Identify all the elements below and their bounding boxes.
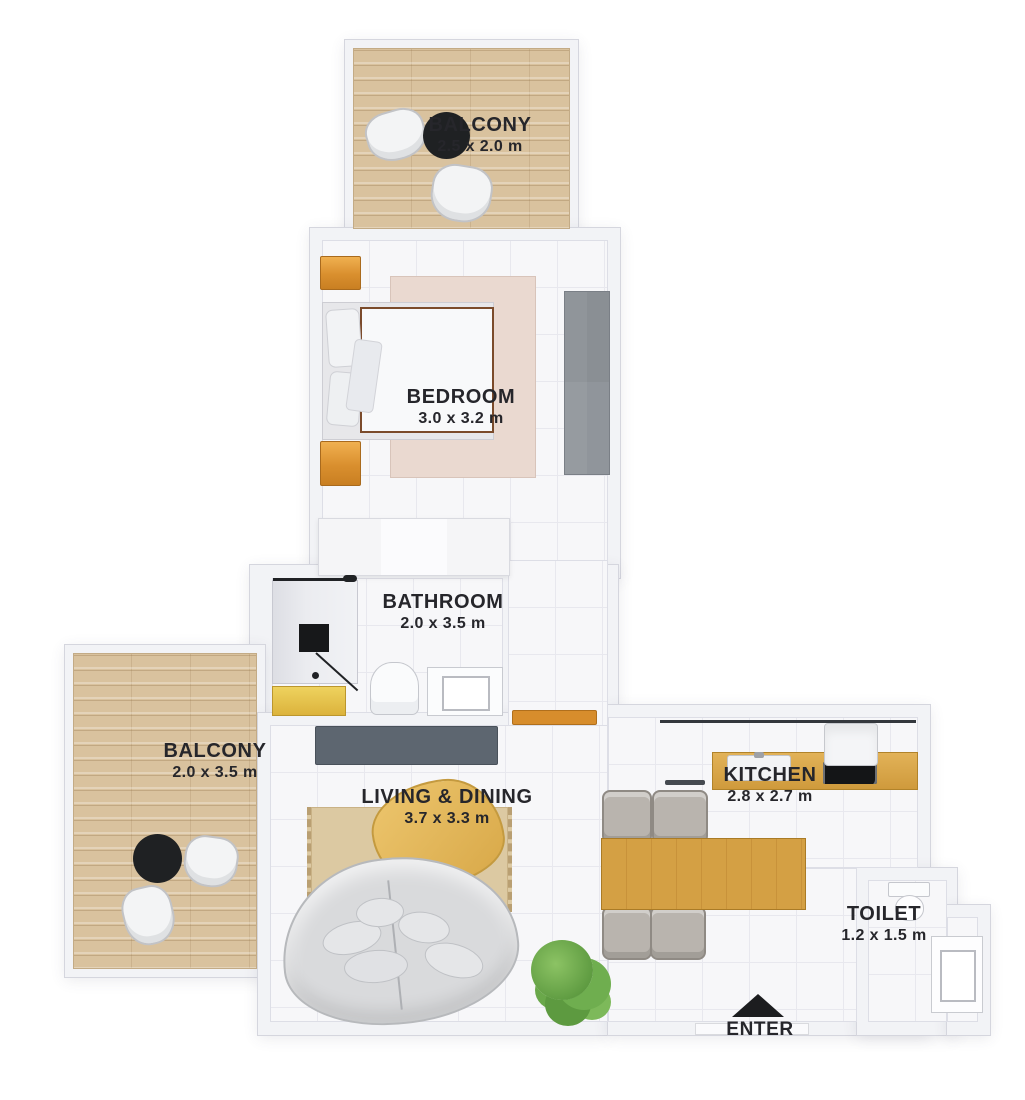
hall-shelf — [512, 710, 597, 725]
toilet-room-sink-basin — [940, 950, 976, 1002]
shower-drain-dot — [312, 672, 319, 679]
dining-chair-1 — [602, 790, 652, 844]
nightstand-bottom — [320, 441, 361, 486]
room-dimensions: 1.2 x 1.5 m — [774, 927, 994, 945]
entry-text: ENTER — [650, 1019, 870, 1040]
room-name: BATHROOM — [333, 591, 553, 613]
entry-label: ENTER — [650, 1019, 870, 1040]
dining-chair-4 — [650, 906, 706, 960]
dining-chair-3 — [602, 906, 652, 960]
tv-console — [315, 726, 498, 765]
dining-table — [601, 838, 806, 910]
room-label-balcony-left: BALCONY 2.0 x 3.5 m — [105, 740, 325, 782]
bathroom-sink-basin — [442, 676, 490, 711]
room-dimensions: 3.7 x 3.3 m — [337, 810, 557, 828]
room-label-balcony-top: BALCONY 2.5 x 2.0 m — [370, 114, 590, 156]
corridor-floor — [508, 560, 608, 730]
room-name: BALCONY — [105, 740, 325, 762]
hall-closet — [318, 518, 510, 576]
bathroom-toilet — [370, 662, 419, 715]
room-name: BALCONY — [370, 114, 590, 136]
room-label-living-dining: LIVING & DINING 3.7 x 3.3 m — [337, 786, 557, 828]
room-label-kitchen: KITCHEN 2.8 x 2.7 m — [660, 764, 880, 806]
bedroom-wardrobe — [564, 291, 610, 475]
room-dimensions: 3.0 x 3.2 m — [351, 410, 571, 428]
room-name: KITCHEN — [660, 764, 880, 786]
kitchen-fridge — [824, 723, 878, 766]
kitchen-faucet — [754, 752, 764, 758]
room-name: BEDROOM — [351, 386, 571, 408]
room-label-bedroom: BEDROOM 3.0 x 3.2 m — [351, 386, 571, 428]
bathroom-vanity — [272, 686, 346, 716]
nightstand-top — [320, 256, 361, 290]
kitchen-backsplash — [660, 720, 916, 723]
room-dimensions: 2.0 x 3.5 m — [105, 764, 325, 782]
shower-door-rail — [273, 578, 353, 581]
room-name: TOILET — [774, 903, 994, 925]
room-dimensions: 2.8 x 2.7 m — [660, 788, 880, 806]
entry-arrow-icon — [732, 994, 784, 1017]
shower-door-handle — [343, 575, 357, 582]
balcony-left-round-table — [133, 834, 182, 883]
plant — [531, 940, 593, 1000]
shower-mat — [299, 624, 329, 652]
room-dimensions: 2.5 x 2.0 m — [370, 138, 590, 156]
room-dimensions: 2.0 x 3.5 m — [333, 615, 553, 633]
room-label-toilet: TOILET 1.2 x 1.5 m — [774, 903, 994, 945]
floor-plan: BALCONY 2.5 x 2.0 m BEDROOM 3.0 x 3.2 m … — [0, 0, 1025, 1100]
room-label-bathroom: BATHROOM 2.0 x 3.5 m — [333, 591, 553, 633]
room-name: LIVING & DINING — [337, 786, 557, 808]
